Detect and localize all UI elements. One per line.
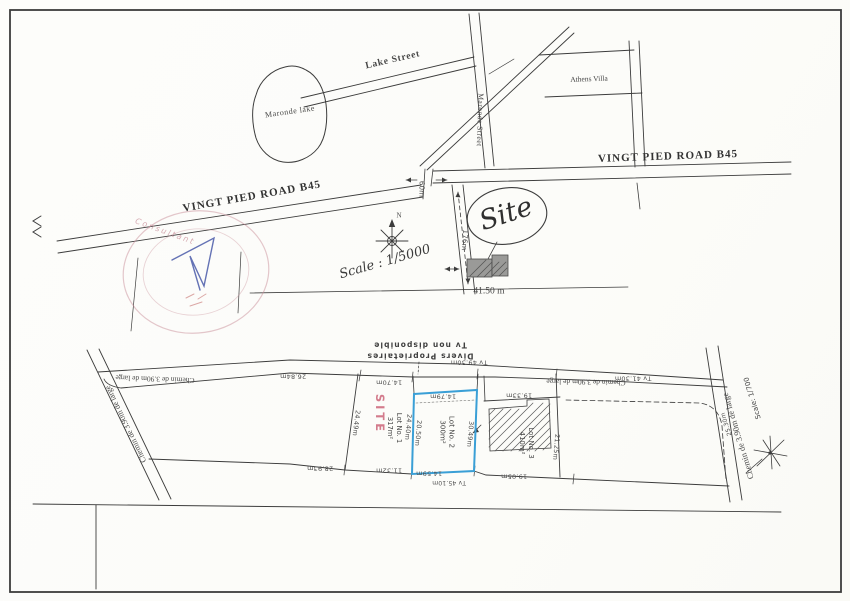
plan-linework: [0, 0, 850, 601]
maronde-street-label: Maronde Street: [475, 93, 484, 147]
lot2-area: 300m²: [438, 416, 447, 448]
dim-24-40: 24.40m: [404, 414, 413, 441]
dim-20-50: 20.50m: [414, 420, 423, 447]
lot2-label: Lot No. 2 300m²: [438, 416, 457, 448]
dim-14-70: 14.70m: [376, 379, 402, 386]
dim-tv-49-30: Tv 49.30m: [451, 359, 488, 366]
lot1-name: Lot No. 1: [395, 413, 403, 443]
dim-tv-41-30: Tv 41.30m: [615, 375, 652, 382]
lot3-name: Lot No. 3: [527, 427, 535, 458]
dim-30-49: 30.49m: [466, 421, 475, 448]
dim-21-25: 21.25m: [552, 434, 561, 461]
dim-19-05: 19.05m: [501, 473, 527, 480]
dim-28-93: 28.93m: [307, 465, 333, 472]
athens-villa-label: Athens Villa: [570, 75, 608, 84]
lot2-name: Lot No. 2: [447, 416, 456, 448]
scanned-survey-document: Maronde lake Lake Street Maronde Street …: [0, 0, 850, 601]
chemin-label-top-left: Chemin de 3.90m de large: [115, 374, 194, 384]
location-map-lines: [57, 13, 791, 331]
dim-41-50m: 41.50 m: [473, 287, 504, 297]
lot1-area: 317m²: [385, 413, 394, 443]
north-label: N: [396, 213, 401, 220]
dim-60m: 60m: [417, 181, 425, 198]
dim-26-84: 26.84m: [280, 373, 306, 380]
lot3-area: 410m²: [517, 427, 526, 458]
dim-tv-45-10: Tv 45.10m: [432, 479, 466, 485]
dim-14-79: 14.79m: [430, 393, 456, 400]
lot3-label: Lot No. 3 410m²: [517, 427, 535, 458]
dim-19-33: 19.33m: [506, 392, 532, 399]
site-stamp-text: SITE: [373, 394, 385, 434]
dim-11-32: 11.32m: [376, 467, 402, 474]
margin-chevron-marks: [33, 216, 41, 237]
site-building: [467, 255, 508, 277]
owners-line2: Tv non disponible: [366, 339, 473, 350]
lot1-label: Lot No. 1 317m²: [385, 413, 403, 443]
dim-176m: 176m: [460, 229, 468, 250]
dim-14-59: 14.59m: [416, 470, 442, 477]
